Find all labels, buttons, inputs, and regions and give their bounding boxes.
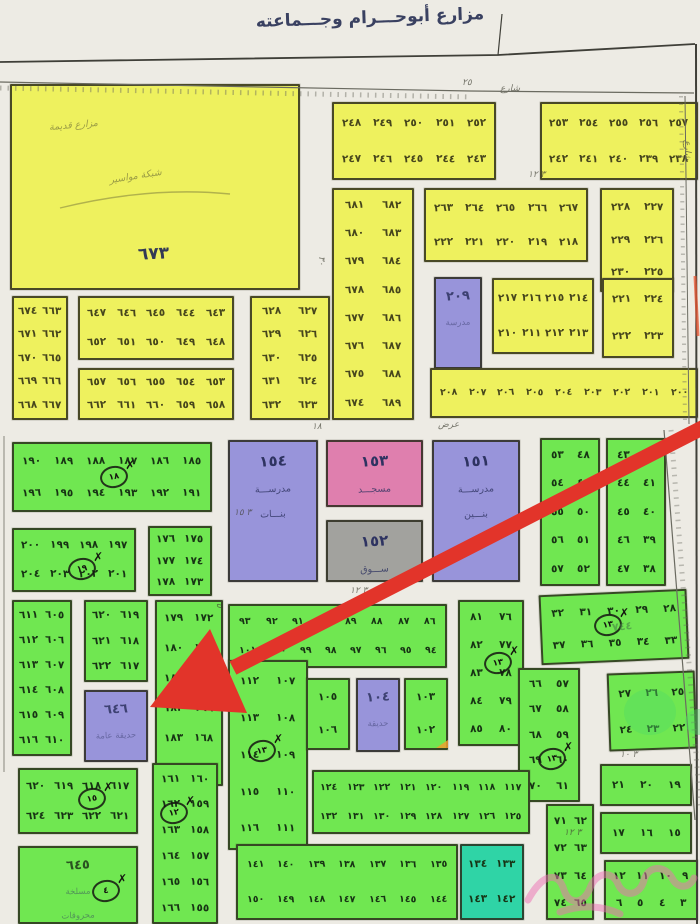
plot-number: ١٩٢ xyxy=(150,487,170,498)
plot-number-row: ٤٥٤٠ xyxy=(610,507,662,518)
green-block-155-166[interactable]: ١٦١١٦٠١٦٢١٥٩١٦٣١٥٨١٦٤١٥٧١٦٥١٥٦١٦٦١٥٥ xyxy=(152,763,218,924)
green-strip-117-132[interactable]: ١٢٤١٢٣١٢٢١٢١١٢٠١١٩١١٨١١٧١٣٢١٣١١٣٠١٢٩١٢٨١… xyxy=(312,770,530,834)
plot-number: ٦٨٢ xyxy=(382,200,402,211)
plot-number: ١٧٣ xyxy=(184,577,204,588)
plot-number-row: ٧٢٦٣ xyxy=(550,843,590,854)
plot-number: ١٥٦ xyxy=(190,877,210,888)
yellow-block-663-674[interactable]: ٦٧٤٦٦٣٦٧١٦٦٢٦٧٠٦٦٥٦٦٩٦٦٦٦٦٨٦٦٧ xyxy=(12,296,68,420)
plot-number: ١٧٢ xyxy=(194,612,214,623)
green-block-167-184-arrow-target[interactable]: ١٧٩١٧٢١٨٠١٧١١٨١١٧٠١٨٢١٦٩١٨٣١٦٨١٨٤١٦٧ xyxy=(155,600,223,786)
plot-number: ١٦٣ xyxy=(161,825,181,836)
x-mark: ✗ xyxy=(273,732,284,746)
plot-number: ٥٥ xyxy=(550,506,563,517)
plot-number-row: ١٧٧١٧٤ xyxy=(152,556,208,567)
plot-number-row: ٥٥٥٠ xyxy=(544,507,596,518)
plot-number: ٦٢١ xyxy=(92,635,112,646)
street-label: ٣ ١٢ xyxy=(528,170,545,180)
plot-number: ٤ xyxy=(658,898,665,909)
plot-number-row: ١٦٣١٥٨ xyxy=(156,825,214,836)
handwritten-note: مزارع قديمة xyxy=(49,118,99,133)
facility-label: حديقة عامة xyxy=(88,730,144,742)
plot-number-row: ٦١٥٦٠٩ xyxy=(16,710,68,721)
plot-number: ٢٠ xyxy=(639,780,652,791)
plot-number: ٦٦ xyxy=(529,678,542,689)
block-number-label: ١٥٢ xyxy=(330,530,420,553)
plot-number: ١٦٨ xyxy=(194,732,214,743)
plot-number: ٦٤٨ xyxy=(205,337,225,348)
plot-number: ١٩٤ xyxy=(86,487,106,498)
plot-number-row: ٦٢١٦١٨ xyxy=(88,636,144,647)
plot-number: ٦٨٦ xyxy=(382,313,402,324)
plot-number-row: ٦٧١٦٦٢ xyxy=(16,329,64,340)
plot-number: ٦٤ xyxy=(573,870,586,881)
plot-number: ١٤٠ xyxy=(277,859,295,869)
plot-number: ٢١٨ xyxy=(559,236,579,247)
plot-number: ٣٨ xyxy=(642,563,655,574)
plot-number-row: ٦٨٠٦٨٣ xyxy=(336,228,410,239)
plot-number: ٨٧ xyxy=(397,617,409,627)
plot-number: ٦٧٨ xyxy=(345,284,365,295)
plot-number-row: ١٠١١٠٠٩٩٩٨٩٧٩٦٩٥٩٤ xyxy=(232,646,443,656)
plot-number: ١٠٣ xyxy=(416,692,436,703)
plot-number-row: ٦٥٤٣ xyxy=(608,898,694,909)
plot-number: ٤٨ xyxy=(576,450,589,461)
plot-number: ١٢٧ xyxy=(452,811,470,821)
plot-number: ١٧٥ xyxy=(184,534,204,545)
yellow-block-253-257[interactable]: ٢٥٣٢٥٤٢٥٥٢٥٦٢٥٧٢٤٢٢٤١٢٤٠٢٣٩٢٣٨ xyxy=(540,102,698,180)
plot-number: ٣٦ xyxy=(580,639,593,650)
plot-number-row: ٦٢٨٦٢٧ xyxy=(254,306,326,317)
block-number-label: ١٥١ xyxy=(436,450,517,472)
plot-number: ٩٨ xyxy=(325,646,337,656)
plot-number: ٢٤٢ xyxy=(549,153,569,164)
plot-number-row: ١٨٠١٧١ xyxy=(159,643,219,654)
plot-number: ١٩٥ xyxy=(54,487,74,498)
plot-number-row: ٥٦٥١ xyxy=(544,535,596,546)
plot-number: ١٦٦ xyxy=(161,902,181,913)
plot-number-row: ٨١٧٦ xyxy=(462,612,520,623)
plot-number: ٦١ xyxy=(556,781,569,792)
plot-number: ١٠٢ xyxy=(416,725,436,736)
garden-646[interactable]: ٦٤٦حديقة عامة xyxy=(84,690,148,762)
plot-number: ١٧٩ xyxy=(164,612,184,623)
plot-number: ٦٥١ xyxy=(117,337,137,348)
plot-number: ٨٩ xyxy=(345,617,357,627)
plot-number: ١٤٣ xyxy=(468,894,488,905)
plot-number-row: ٦١٢٦٠٦ xyxy=(16,635,68,646)
plot-number: ٢١٩ xyxy=(527,236,547,247)
plot-number: ٢١٤ xyxy=(568,293,588,304)
plot-number-row: ١٠٥ xyxy=(310,692,346,703)
plot-number: ٢٤ xyxy=(619,724,633,735)
plot-number: ٦٨ xyxy=(529,730,542,741)
yellow-block-210-217[interactable]: ٢١٧٢١٦٢١٥٢١٤٢١٠٢١١٢١٢٢١٣ xyxy=(492,278,594,354)
plot-number: ٢٠٤ xyxy=(21,569,41,580)
green-strip-86-101[interactable]: ٩٣٩٢٩١٩٠٨٩٨٨٨٧٨٦١٠١١٠٠٩٩٩٨٩٧٩٦٩٥٩٤ xyxy=(228,604,447,668)
plot-number-row: ١٥٠١٤٩١٤٨١٤٧١٤٦١٤٥١٤٤ xyxy=(240,895,454,905)
plot-number-row: ١٠٢ xyxy=(408,725,444,736)
plot-number: ١٢٨ xyxy=(425,811,443,821)
plot-number: ٢٥ xyxy=(671,686,685,697)
plot-number: ٣٢ xyxy=(551,608,565,619)
plot-number: ٦٨٧ xyxy=(382,341,402,352)
block-number-label: ١٥٤ xyxy=(232,450,315,472)
plot-number: ٦٨٤ xyxy=(382,256,402,267)
plot-number: ١٦ xyxy=(639,828,652,839)
green-block-3-12[interactable]: ١٢١١١٠٩٦٥٤٣ xyxy=(604,860,698,920)
plot-number: ٤٦ xyxy=(616,535,629,546)
plot-number: ٨٠ xyxy=(499,724,512,735)
plot-number-row: ١٦٦١٥٥ xyxy=(156,903,214,914)
plot-number: ٣٣ xyxy=(664,635,678,646)
plot-number: ١١٠ xyxy=(276,786,296,797)
block-number-label: ٦٧٣ xyxy=(137,243,169,265)
plot-number: ٦١٠ xyxy=(45,735,65,746)
plot-number: ٢٠٨ xyxy=(440,388,458,398)
green-block-22-27[interactable]: ٢٧٢٦٢٥٢٤٢٣٢٢ xyxy=(607,670,698,751)
plot-number: ٧٠ xyxy=(529,781,542,792)
plot-number: ٦٢٢ xyxy=(82,810,102,821)
plot-number-row: ١١٦١١١ xyxy=(232,823,304,834)
plot-number: ٩٤ xyxy=(425,646,437,656)
plot-number: ٦١١ xyxy=(19,610,39,621)
plot-number: ٦٧٩ xyxy=(345,256,365,267)
plot-number: ١٣٩ xyxy=(308,859,326,869)
yellow-block-623-632[interactable]: ٦٢٨٦٢٧٦٢٩٦٢٦٦٣٠٦٢٥٦٣١٦٢٤٦٣٢٦٢٣ xyxy=(250,296,330,420)
boys-school-151[interactable]: ١٥١مدرســـةبنـــين xyxy=(432,440,520,582)
plot-number: ١٣٢ xyxy=(320,811,338,821)
plot-number: ٢٣٩ xyxy=(639,153,659,164)
plot-number-row: ٦٨١٦٨٢ xyxy=(336,200,410,211)
plot-number: ٢٥٦ xyxy=(639,117,659,128)
yellow-strip-200-208[interactable]: ٢٠٨٢٠٧٢٠٦٢٠٥٢٠٤٢٠٣٢٠٢٢٠١٢٠٠ xyxy=(430,368,698,418)
street-label: ٣ ١٢ xyxy=(350,586,367,596)
plot-number: ٣ xyxy=(680,898,687,909)
x-mark: ✗ xyxy=(117,872,128,886)
plot-number: ٤٠ xyxy=(642,506,655,517)
plot-number-row: ٦٣٠٦٢٥ xyxy=(254,353,326,364)
plot-number: ٢٢٥ xyxy=(644,267,664,278)
plot-number: ٢٤٧ xyxy=(342,153,362,164)
plot-number-row: ١٧٨١٧٣ xyxy=(152,577,208,588)
plot-number: ١٩٩ xyxy=(50,540,70,551)
plot-number-row: ١١٢١٠٧ xyxy=(232,676,304,687)
plot-number: ٢١٥ xyxy=(545,293,565,304)
plot-number: ٦٥٤ xyxy=(176,377,196,388)
yellow-block-653-662[interactable]: ٦٥٧٦٥٦٦٥٥٦٥٤٦٥٣٦٦٢٦٦١٦٦٠٦٥٩٦٥٨ xyxy=(78,368,234,420)
plot-number: ٢٠٢ xyxy=(613,388,631,398)
plot-number-row: ٦٣١٦٢٤ xyxy=(254,376,326,387)
plot-number: ٢١٧ xyxy=(498,293,518,304)
plot-number: ١٢١ xyxy=(399,782,417,792)
yellow-block-221-224[interactable]: ٢٢١٢٢٤٢٢٢٢٢٣ xyxy=(602,278,674,358)
green-block-19-21[interactable]: ٢١٢٠١٩ xyxy=(600,764,692,806)
plot-number: ١٠٦ xyxy=(318,725,338,736)
street-label: ٣ ١٠ xyxy=(620,750,637,760)
plot-number: ٥٩ xyxy=(556,730,569,741)
plot-number: ٦٢٢ xyxy=(92,661,112,672)
plot-number: ١٣٥ xyxy=(430,859,448,869)
plot-number-row: ١٧١٦١٥ xyxy=(604,828,688,839)
plot-number: ٦٢٠ xyxy=(26,780,46,791)
plot-number: ٥٧ xyxy=(550,563,563,574)
plot-number: ٦٨٥ xyxy=(382,284,402,295)
plot-number: ٥٤ xyxy=(550,478,563,489)
plot-number: ٣٧ xyxy=(552,640,566,651)
plot-number: ٢٦ xyxy=(645,688,658,699)
plot-number: ٦٥ xyxy=(573,898,586,909)
plot-number: ١٢٥ xyxy=(504,811,522,821)
block-number-label: ٢٠٩ xyxy=(438,288,479,305)
plot-number: ٢٥٥ xyxy=(609,117,629,128)
plot-number: ٣٥ xyxy=(608,637,622,648)
plot-number: ٢٥٧ xyxy=(669,117,689,128)
plot-number: ١٤١ xyxy=(246,859,264,869)
yellow-block-225-230[interactable]: ٢٢٨٢٢٧٢٢٩٢٢٦٢٣٠٢٢٥ xyxy=(600,188,674,292)
plot-number: ٦٧٦ xyxy=(345,341,365,352)
plot-number: ٦ xyxy=(615,898,622,909)
street-label: عرض xyxy=(438,420,459,430)
yellow-block-674-689[interactable]: ٦٨١٦٨٢٦٨٠٦٨٣٦٧٩٦٨٤٦٧٨٦٨٥٦٧٧٦٨٦٦٧٦٦٨٧٦٧٥٦… xyxy=(332,188,414,420)
plot-number: ٦٧ xyxy=(529,704,542,715)
plot-number: ٦٨٣ xyxy=(382,228,402,239)
street-label: ٣٠ xyxy=(316,256,326,266)
plot-number-row: ٤٦٣٩ xyxy=(610,535,662,546)
plot-number: ١٢٠ xyxy=(425,782,443,792)
market-152[interactable]: ١٥٢ســـوق xyxy=(326,520,423,582)
plot-number: ٢٤١ xyxy=(579,153,599,164)
plot-number: ٦٦٦ xyxy=(42,376,62,387)
x-mark: ✗ xyxy=(619,606,630,620)
plot-number: ٢٠٤ xyxy=(555,388,573,398)
plot-number-row: ٦٢٢٦١٧ xyxy=(88,661,144,672)
facility-label: بنـــين xyxy=(436,508,516,522)
handwritten-note: شبكة مواسير xyxy=(109,167,163,186)
green-block-605-616[interactable]: ٦١١٦٠٥٦١٢٦٠٦٦١٣٦٠٧٦١٤٦٠٨٦١٥٦٠٩٦١٦٦١٠ xyxy=(12,600,72,756)
facility-label: حديقة xyxy=(360,718,396,729)
plot-number: ٢٦٦ xyxy=(527,202,547,213)
plot-number: ١٩٣ xyxy=(118,487,138,498)
plot-number: ١٧١ xyxy=(194,642,214,653)
plot-number-row: ٢٠٨٢٠٧٢٠٦٢٠٥٢٠٤٢٠٣٢٠٢٢٠١٢٠٠ xyxy=(434,388,694,398)
plot-number: ٢٤٨ xyxy=(342,117,362,128)
plot-number: ١٢٤ xyxy=(320,782,338,792)
plot-number: ٥٣ xyxy=(550,450,563,461)
plot-number: ٦٢٩ xyxy=(262,329,282,340)
yellow-block-248-252[interactable]: ٢٤٨٢٤٩٢٥٠٢٥١٢٥٢٢٤٧٢٤٦٢٤٥٢٤٤٢٤٣ xyxy=(332,102,496,180)
plot-number: ٦٣٢ xyxy=(262,400,282,411)
block-number-label: ١٠٤ xyxy=(360,689,397,706)
plot-number-row: ٢٠٠١٩٩١٩٨١٩٧ xyxy=(16,540,132,551)
green-block-38-47[interactable]: ٤٣٤٢٤٤٤١٤٥٤٠٤٦٣٩٤٧٣٨ xyxy=(606,438,666,586)
plot-number: ٩٧ xyxy=(350,646,362,656)
plot-number: ٢٣٠ xyxy=(611,267,631,278)
plot-number-row: ٢٤٨٢٤٩٢٥٠٢٥١٢٥٢ xyxy=(336,118,492,129)
plot-number: ٢٠٥ xyxy=(526,388,544,398)
plot-number: ٢١٦ xyxy=(521,293,541,304)
plot-number-row: ١٦٥١٥٦ xyxy=(156,877,214,888)
plot-number: ١٠٨ xyxy=(276,713,296,724)
green-block-102-103[interactable]: ١٠٣١٠٢ xyxy=(404,678,448,750)
plot-number-row: ٢١٧٢١٦٢١٥٢١٤ xyxy=(496,293,590,304)
plot-number: ١١٥ xyxy=(240,786,260,797)
plot-number: ٢٦٥ xyxy=(496,202,516,213)
garden-104[interactable]: ١٠٤حديقة xyxy=(356,678,400,752)
x-mark: ✗ xyxy=(185,794,196,808)
plot-number-row: ٢٢٢٢٢٣ xyxy=(606,331,670,342)
plot-number: ٢٤٦ xyxy=(373,153,393,164)
green-block-173-178[interactable]: ١٧٦١٧٥١٧٧١٧٤١٧٨١٧٣ xyxy=(148,526,212,596)
facility-label: مدرســـة xyxy=(436,483,516,497)
plot-number-row: ١٦١١٦٠ xyxy=(156,774,214,785)
plot-number: ٢١٣ xyxy=(568,328,588,339)
plot-number: ٦٧٤ xyxy=(345,397,365,408)
plot-number: ١٩١ xyxy=(182,487,202,498)
plot-number-row: ١٧٩١٧٢ xyxy=(159,613,219,624)
plot-number: ٦٦١ xyxy=(117,400,137,411)
plot-number: ٦٤٩ xyxy=(176,337,196,348)
plot-number: ٢٥٠ xyxy=(404,117,424,128)
plot-number: ٢٢٤ xyxy=(644,294,664,305)
plot-number: ٢٠٠ xyxy=(21,540,41,551)
plot-number: ٦٥٢ xyxy=(87,337,107,348)
plot-number-row: ٥٣٤٨ xyxy=(544,450,596,461)
school-209[interactable]: ٢٠٩مدرسة xyxy=(434,277,482,369)
green-block-15-17[interactable]: ١٧١٦١٥ xyxy=(600,812,692,854)
plot-number: ٦٣ xyxy=(573,843,586,854)
plot-number: ٦٢٧ xyxy=(298,305,318,316)
farm-673[interactable]: ٦٧٣مزارع قديمةشبكة مواسير xyxy=(10,84,300,290)
plot-number: ٢٢٦ xyxy=(644,234,664,245)
plot-number: ١٣٦ xyxy=(399,859,417,869)
plot-number: ٦٦٥ xyxy=(42,352,62,363)
plot-number: ٢٤٤ xyxy=(435,153,455,164)
plot-number: ٩٠ xyxy=(318,617,330,627)
plot-number: ٧١ xyxy=(553,815,566,826)
street-label: ٣ ١٢ xyxy=(564,828,581,838)
yellow-block-263-267[interactable]: ٢٦٣٢٦٤٢٦٥٢٦٦٢٦٧٢٢٢٢٢١٢٢٠٢١٩٢١٨ xyxy=(424,188,588,262)
plot-number: ١٤٦ xyxy=(369,894,387,904)
plot-number: ٦٦٩ xyxy=(18,376,38,387)
x-mark: ✗ xyxy=(103,780,114,794)
plot-number: ١٨٥ xyxy=(182,455,202,466)
plot-number: ٦٥٦ xyxy=(117,377,137,388)
x-mark: ✗ xyxy=(93,550,104,564)
plot-number: ٤١ xyxy=(642,478,655,489)
plot-number: ٦٧١ xyxy=(18,329,38,340)
plot-number-row: ٦٤٧٦٤٦٦٤٥٦٤٤٦٤٣ xyxy=(82,308,230,319)
plot-number: ٦٣٠ xyxy=(262,352,282,363)
plot-number: ٢٣ xyxy=(646,724,659,735)
plot-number: ٧٤ xyxy=(553,898,566,909)
plot-number: ١٩٠ xyxy=(22,455,42,466)
plot-number: ٦٦٣ xyxy=(42,305,62,316)
plot-number: ٢٠٣ xyxy=(584,388,602,398)
mosque-153[interactable]: ١٥٣مسجـــد xyxy=(326,440,423,507)
plot-number: ١٥٨ xyxy=(190,825,210,836)
plot-number: ٢٤٥ xyxy=(404,153,424,164)
plot-number: ٦١٧ xyxy=(120,661,140,672)
plot-number: ١٨٢ xyxy=(164,702,184,713)
plot-number: ٣٩ xyxy=(642,535,655,546)
plot-number: ٧٣ xyxy=(553,870,566,881)
plot-number: ٦١٣ xyxy=(19,660,39,671)
plot-number: ٢٥٢ xyxy=(467,117,487,128)
green-strip-135-150[interactable]: ١٤١١٤٠١٣٩١٣٨١٣٧١٣٦١٣٥١٥٠١٤٩١٤٨١٤٧١٤٦١٤٥١… xyxy=(236,844,458,920)
plot-number: ١٣٠ xyxy=(373,811,391,821)
plot-number-row: ٨٥٨٠ xyxy=(462,724,520,735)
plot-number: ٦٢٤ xyxy=(26,810,46,821)
plot-number: ٦٧٧ xyxy=(345,313,365,324)
plot-number: ٦٥٠ xyxy=(146,337,166,348)
plot-number-row: ١٤١١٤٠١٣٩١٣٨١٣٧١٣٦١٣٥ xyxy=(240,860,454,870)
plot-number: ١٠ xyxy=(659,871,672,882)
plot-number-row: ٦٨٥٩ xyxy=(522,730,576,741)
plot-number: ٦٢٣ xyxy=(54,810,74,821)
plot-number: ٢١١ xyxy=(521,328,541,339)
plot-number: ٢٠١ xyxy=(642,388,660,398)
x-mark: ✗ xyxy=(509,644,520,658)
plot-number: ٢٠١ xyxy=(108,569,128,580)
plot-number: ٢٢١ xyxy=(465,236,485,247)
green-block-62-74[interactable]: ٧١٦٢٧٢٦٣٧٣٦٤٧٤٦٥ xyxy=(546,804,594,920)
plot-number: ٦٢٨ xyxy=(262,305,282,316)
plot-number-row: ٦٧٠٦٦٥ xyxy=(16,353,64,364)
yellow-block-643-652[interactable]: ٦٤٧٦٤٦٦٤٥٦٤٤٦٤٣٦٥٢٦٥١٦٥٠٦٤٩٦٤٨ xyxy=(78,296,234,360)
plot-number: ٢٩ xyxy=(635,604,648,615)
plot-number-row: ٤٤٤١ xyxy=(610,478,662,489)
plot-number-row: ٦٧٧٦٨٦ xyxy=(336,313,410,324)
plot-number: ١٥٠ xyxy=(246,894,264,904)
plot-number: ٨٥ xyxy=(470,724,483,735)
plot-number: ٦٥٧ xyxy=(87,377,107,388)
plot-number: ١٧٦ xyxy=(156,534,176,545)
plot-number: ١٤٨ xyxy=(308,894,326,904)
facility-label: مسجـــد xyxy=(330,482,419,496)
plot-number-row: ٦١٤٦٠٨ xyxy=(16,685,68,696)
plot-number: ٦٨١ xyxy=(345,200,365,211)
plot-number: ٢٠٠ xyxy=(671,388,689,398)
plot-number: ٢٧ xyxy=(618,688,632,699)
plot-number: ١٨٨ xyxy=(86,455,106,466)
plot-number: ٥٨ xyxy=(556,704,569,715)
plot-number: ٢٠٦ xyxy=(497,388,515,398)
plot-number: ٦٤٧ xyxy=(87,308,107,319)
facility-label: مدرسة xyxy=(438,317,478,328)
plot-number: ٨١ xyxy=(470,612,483,623)
plot-number: ٢٥٤ xyxy=(579,117,599,128)
green-block-617-622[interactable]: ٦٢٠٦١٩٦٢١٦١٨٦٢٢٦١٧ xyxy=(84,600,148,682)
plot-number: ٦٢٥ xyxy=(298,352,318,363)
teal-block-133-143[interactable]: ١٣٤١٣٣١٤٣١٤٢ xyxy=(460,844,524,920)
plot-number: ١٥٧ xyxy=(190,851,210,862)
plot-number-row: ٦٧٩٦٨٤ xyxy=(336,256,410,267)
plot-number: ١٦٥ xyxy=(161,877,181,888)
plot-number: ٨٢ xyxy=(470,640,483,651)
plot-number: ١٣٧ xyxy=(369,859,387,869)
green-block-105-106[interactable]: ١٠٥١٠٦ xyxy=(306,678,350,750)
plot-number: ٦٥٩ xyxy=(176,400,196,411)
plot-number: ٤٣ xyxy=(616,450,629,461)
plot-number: ١٧ xyxy=(611,828,624,839)
plot-number: ٦٥٥ xyxy=(146,377,166,388)
plot-number: ١٧٠ xyxy=(194,672,214,683)
plot-number: ٦٢٠ xyxy=(92,610,112,621)
plot-number: ٢٢٢ xyxy=(612,331,632,342)
plot-number: ٢٥١ xyxy=(435,117,455,128)
green-block-48-57[interactable]: ٥٣٤٨٥٤٤٩٥٥٥٠٥٦٥١٥٧٥٢ xyxy=(540,438,600,586)
plot-number: ١٢٢ xyxy=(373,782,391,792)
